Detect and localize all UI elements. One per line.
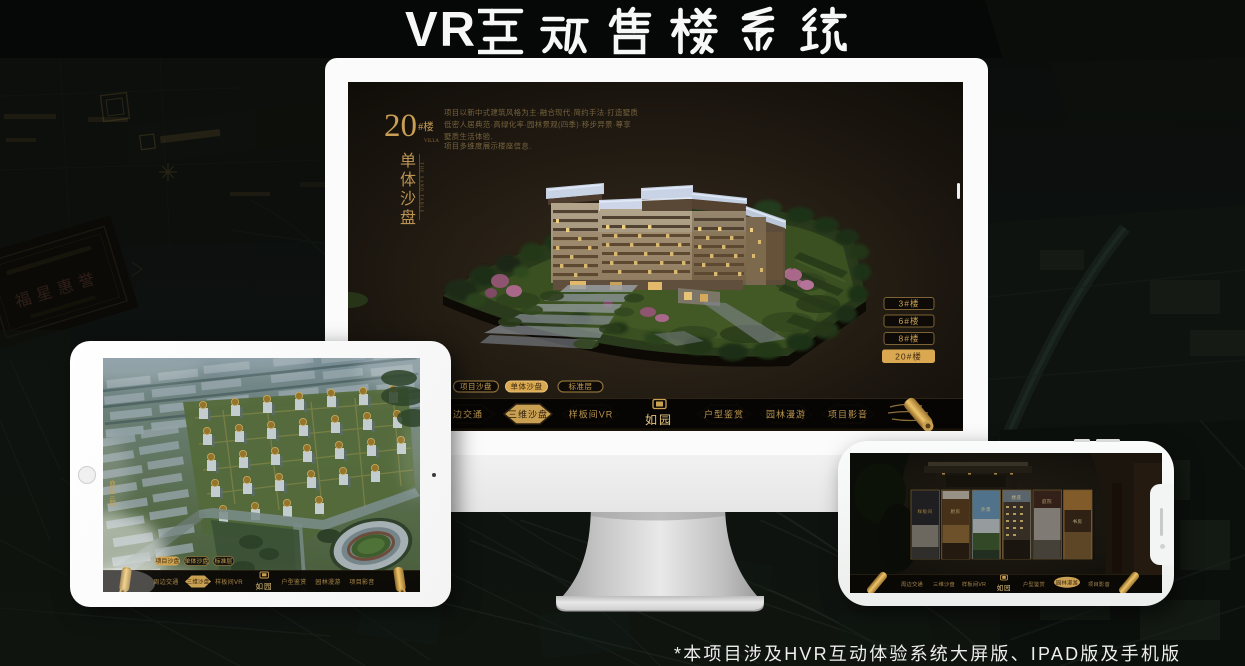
- svg-text:项目多维度展示楼座信息.: 项目多维度展示楼座信息.: [444, 142, 532, 151]
- svg-text:园林漫游: 园林漫游: [1056, 578, 1078, 586]
- svg-text:如园: 如园: [645, 412, 673, 427]
- svg-text:样板间VR: 样板间VR: [962, 580, 986, 588]
- svg-text:三维沙盘: 三维沙盘: [187, 578, 210, 586]
- svg-text:园林漫游: 园林漫游: [766, 409, 806, 420]
- svg-text:户型鉴赏: 户型鉴赏: [281, 578, 306, 586]
- svg-text:8#楼: 8#楼: [899, 334, 920, 344]
- svg-text:项目沙盘: 项目沙盘: [460, 381, 492, 391]
- svg-text:边交通: 边交通: [453, 409, 483, 420]
- svg-text:户型鉴赏: 户型鉴赏: [704, 409, 744, 420]
- svg-text:如园: 如园: [997, 583, 1012, 592]
- svg-text:VILLA: VILLA: [424, 139, 439, 144]
- svg-text:3#楼: 3#楼: [899, 299, 920, 309]
- svg-text:项目沙盘: 项目沙盘: [156, 557, 180, 565]
- svg-text:如园: 如园: [256, 581, 273, 591]
- svg-text:墅质生活体验.: 墅质生活体验.: [444, 132, 493, 141]
- svg-text:三维沙盘: 三维沙盘: [933, 580, 955, 588]
- svg-text:标准层: 标准层: [569, 381, 593, 391]
- svg-text:样板间VR: 样板间VR: [215, 578, 243, 586]
- svg-text:体: 体: [400, 171, 416, 189]
- svg-text:户型鉴赏: 户型鉴赏: [1023, 580, 1045, 588]
- svg-text:20#楼: 20#楼: [895, 352, 922, 362]
- svg-text:园林漫游: 园林漫游: [315, 578, 340, 586]
- svg-text:单体沙盘: 单体沙盘: [511, 381, 543, 391]
- svg-text:样板间VR: 样板间VR: [569, 409, 614, 420]
- svg-text:6#楼: 6#楼: [899, 316, 920, 326]
- svg-text:#楼: #楼: [418, 120, 434, 133]
- svg-text:沙: 沙: [400, 191, 416, 208]
- svg-text:项目以新中式建筑风格为主·融合现代·简约手法·打造墅质: 项目以新中式建筑风格为主·融合现代·简约手法·打造墅质: [444, 108, 638, 117]
- svg-text:项目影音: 项目影音: [349, 578, 374, 586]
- svg-text:项目影音: 项目影音: [828, 409, 868, 420]
- svg-text:周边交通: 周边交通: [153, 578, 178, 586]
- svg-text:20: 20: [384, 108, 417, 144]
- svg-text:周边交通: 周边交通: [901, 580, 923, 588]
- svg-text:标准层: 标准层: [215, 557, 233, 565]
- svg-text:低密人居典范·高绿化率·园林景观(四季)·移步异景·尊享: 低密人居典范·高绿化率·园林景观(四季)·移步异景·尊享: [444, 120, 631, 129]
- svg-text:单体沙盘: 单体沙盘: [185, 557, 209, 565]
- svg-text:单: 单: [400, 152, 416, 170]
- svg-text:项目影音: 项目影音: [1088, 580, 1110, 588]
- svg-text:三维沙盘: 三维沙盘: [508, 409, 548, 420]
